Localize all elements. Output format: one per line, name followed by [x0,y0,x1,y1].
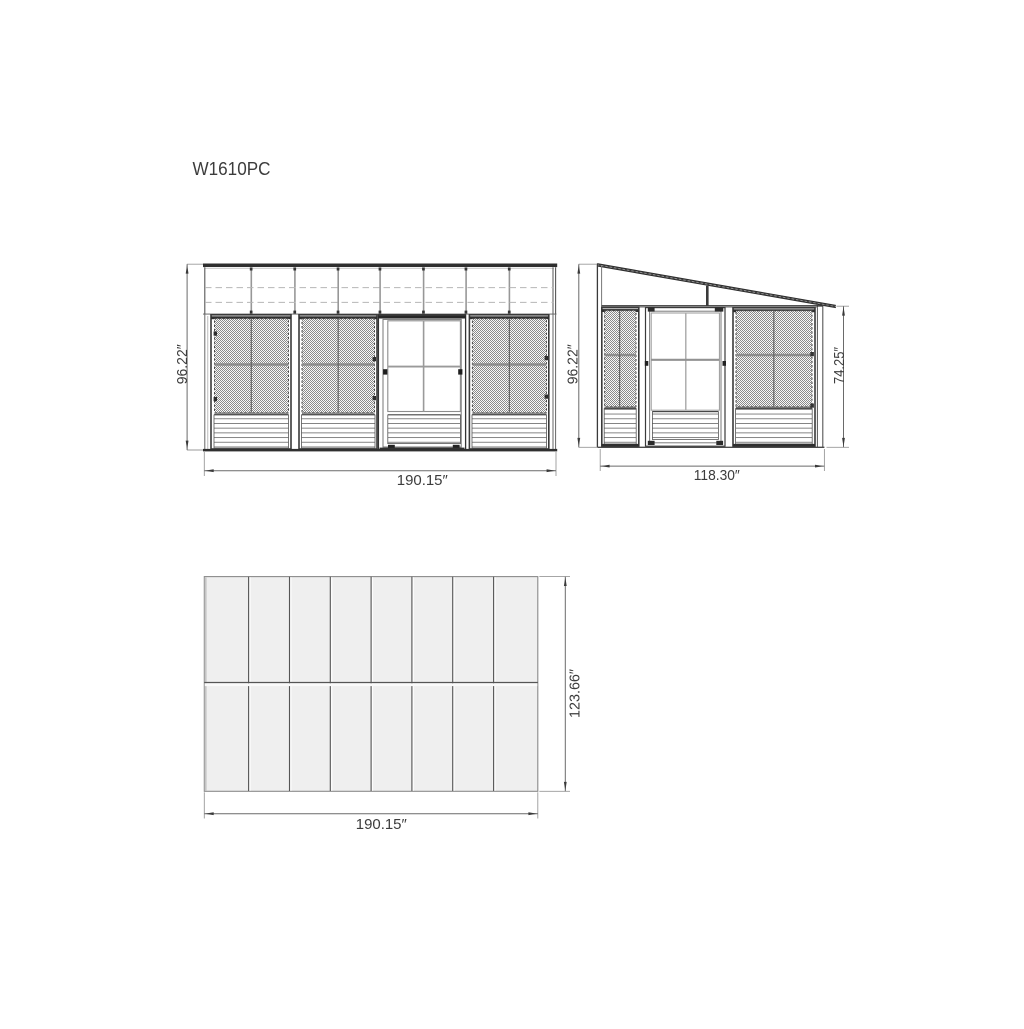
svg-text:118.30″: 118.30″ [694,467,741,484]
svg-text:96.22″: 96.22″ [174,344,191,385]
svg-text:W1610PC: W1610PC [193,158,271,179]
svg-text:96.22″: 96.22″ [564,344,581,385]
svg-text:74.25″: 74.25″ [831,346,848,384]
svg-text:190.15″: 190.15″ [397,472,449,489]
svg-text:123.66″: 123.66″ [566,668,583,718]
svg-text:190.15″: 190.15″ [356,816,408,833]
